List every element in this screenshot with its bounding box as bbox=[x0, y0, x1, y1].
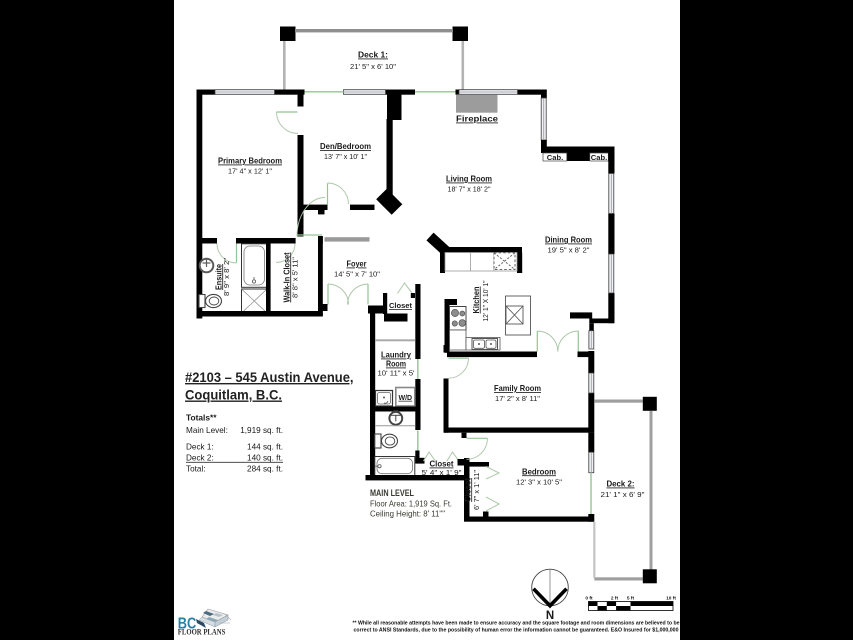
svg-text:18' 7" x 18' 2": 18' 7" x 18' 2" bbox=[448, 185, 491, 194]
svg-text:W/D: W/D bbox=[398, 395, 412, 402]
svg-text:Coquitlam, B.C.: Coquitlam, B.C. bbox=[185, 387, 282, 403]
svg-text:Deck 2:: Deck 2: bbox=[186, 454, 214, 463]
svg-text:Main Level:: Main Level: bbox=[186, 426, 228, 435]
svg-text:12' 1" X 10' 1": 12' 1" X 10' 1" bbox=[481, 280, 490, 321]
svg-text:140 sq. ft.: 140 sq. ft. bbox=[247, 454, 283, 463]
svg-text:Deck 1:: Deck 1: bbox=[186, 443, 214, 452]
svg-text:144 sq. ft.: 144 sq. ft. bbox=[247, 443, 283, 452]
svg-text:10 ft: 10 ft bbox=[666, 596, 676, 602]
svg-text:14' 5" x 7' 10": 14' 5" x 7' 10" bbox=[334, 270, 380, 279]
svg-text:Cab.: Cab. bbox=[547, 153, 563, 162]
svg-text:Family Room: Family Room bbox=[494, 384, 541, 393]
svg-text:8' 8" x 5' 11": 8' 8" x 5' 11" bbox=[290, 257, 299, 298]
svg-text:21' 5" x 6' 10": 21' 5" x 6' 10" bbox=[350, 62, 396, 71]
svg-text:10' 11" x 5': 10' 11" x 5' bbox=[378, 369, 416, 378]
svg-text:Foyer: Foyer bbox=[347, 260, 368, 269]
svg-text:17' 2" x 8' 11": 17' 2" x 8' 11" bbox=[495, 394, 540, 403]
svg-text:#2103 – 545 Austin Avenue,: #2103 – 545 Austin Avenue, bbox=[185, 369, 354, 385]
svg-text:Room: Room bbox=[386, 360, 406, 369]
svg-text:6' 7" x 1' 11": 6' 7" x 1' 11" bbox=[472, 470, 481, 510]
svg-text:correct to ANSI Standards, due: correct to ANSI Standards, due to the po… bbox=[354, 628, 679, 634]
svg-text:Deck 1:: Deck 1: bbox=[358, 51, 388, 60]
svg-text:FLOOR PLANS: FLOOR PLANS bbox=[178, 628, 226, 637]
svg-text:284 sq. ft.: 284 sq. ft. bbox=[247, 465, 283, 474]
svg-text:Closet: Closet bbox=[389, 301, 412, 310]
svg-text:Laundry: Laundry bbox=[381, 351, 411, 360]
svg-text:21' 1" x 6' 9": 21' 1" x 6' 9" bbox=[601, 490, 645, 499]
svg-text:17' 4" x 12' 1": 17' 4" x 12' 1" bbox=[228, 167, 272, 176]
svg-text:Living Room: Living Room bbox=[446, 175, 492, 184]
svg-text:Floor Area: 1,919 Sq. Ft.: Floor Area: 1,919 Sq. Ft. bbox=[370, 499, 452, 509]
svg-text:5' 4" x 1' 9": 5' 4" x 1' 9" bbox=[422, 468, 463, 477]
svg-text:Dining Room: Dining Room bbox=[545, 236, 592, 245]
svg-text:** While all reasonable attemp: ** While all reasonable attempts have be… bbox=[353, 621, 680, 627]
svg-text:2 ft: 2 ft bbox=[611, 596, 619, 602]
svg-text:Primary Bedroom: Primary Bedroom bbox=[218, 157, 282, 166]
svg-text:Ceiling Height: 8' 11"": Ceiling Height: 8' 11"" bbox=[370, 509, 445, 519]
svg-text:Totals**: Totals** bbox=[186, 413, 217, 423]
svg-text:12' 3" x 10' 5": 12' 3" x 10' 5" bbox=[516, 477, 562, 486]
svg-text:0 ft: 0 ft bbox=[585, 596, 593, 602]
svg-text:8' 9" x 8' 2": 8' 9" x 8' 2" bbox=[222, 258, 231, 296]
svg-text:1,919 sq. ft.: 1,919 sq. ft. bbox=[240, 426, 283, 435]
svg-text:5 ft: 5 ft bbox=[627, 596, 635, 602]
svg-text:Kitchen: Kitchen bbox=[472, 287, 481, 314]
svg-text:Deck 2:: Deck 2: bbox=[607, 480, 635, 489]
svg-text:19' 5" x 8' 2": 19' 5" x 8' 2" bbox=[548, 246, 590, 255]
svg-text:13' 7" x 10' 1": 13' 7" x 10' 1" bbox=[324, 152, 367, 161]
svg-text:MAIN LEVEL: MAIN LEVEL bbox=[370, 488, 414, 498]
svg-text:Fireplace: Fireplace bbox=[456, 115, 499, 124]
svg-text:Total:: Total: bbox=[186, 465, 206, 474]
svg-text:Bedroom: Bedroom bbox=[522, 467, 556, 476]
svg-text:Den/Bedroom: Den/Bedroom bbox=[320, 142, 371, 151]
svg-text:Cab.: Cab. bbox=[591, 153, 607, 162]
